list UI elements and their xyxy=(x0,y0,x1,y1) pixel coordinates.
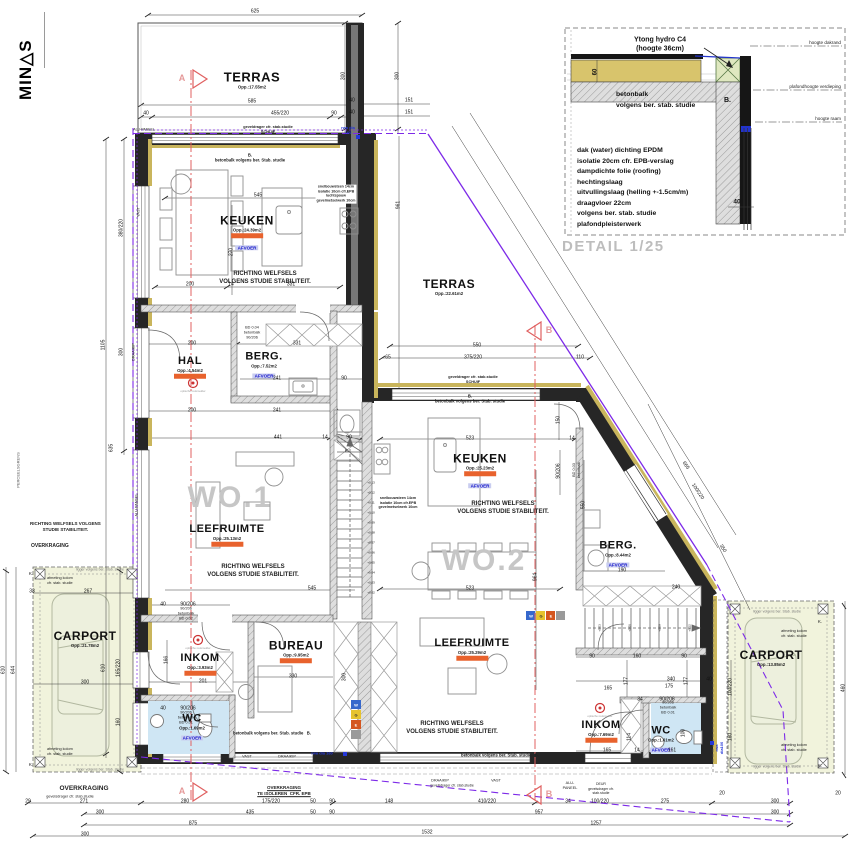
floorplan-sheet: TERRAS Opp.:17.55m2 KEUKEN Opp.:24.39m2 … xyxy=(0,0,855,842)
floorplan-linework xyxy=(0,0,855,842)
wc-1-floor xyxy=(148,701,229,754)
diagonal-insulation xyxy=(587,386,716,589)
logo-divider xyxy=(44,12,45,68)
carport-left-shape xyxy=(33,567,141,772)
detail-beam-ref: B. xyxy=(724,97,731,104)
detail-caption: DETAIL 1/25 xyxy=(562,238,665,255)
staircase-wo2 xyxy=(585,608,700,648)
overhang-lines xyxy=(141,768,712,774)
carport-right-shape xyxy=(728,601,834,773)
detail-callout: Ytong hydro C4 (hoogte 36cm) xyxy=(634,36,686,55)
minas-logo: MIN△S xyxy=(16,8,36,100)
detail-roof-layers: dak (water) dichting EPDM isolatie 20cm … xyxy=(577,146,688,230)
terras-1-outline xyxy=(138,23,362,133)
detail-beam-note: betonbalk volgens ber. stab. studie xyxy=(616,90,695,112)
